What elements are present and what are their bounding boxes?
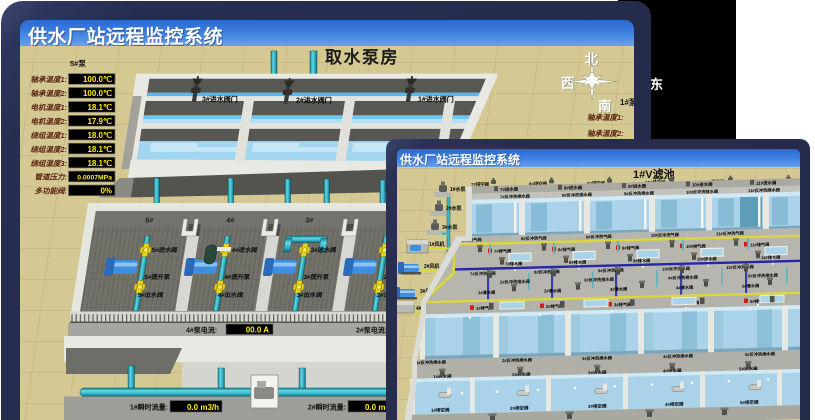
svg-text:5#提升泵: 5#提升泵 bbox=[144, 273, 171, 281]
svg-text:18.0℃: 18.0℃ bbox=[87, 131, 112, 140]
svg-text:100.0℃: 100.0℃ bbox=[83, 89, 112, 98]
svg-text:5#进水阀: 5#进水阀 bbox=[151, 246, 178, 254]
svg-text:2#风机: 2#风机 bbox=[424, 263, 440, 270]
svg-text:1#V滤池: 1#V滤池 bbox=[633, 167, 675, 181]
svg-text:4#: 4# bbox=[226, 218, 235, 225]
svg-text:电机温度2:: 电机温度2: bbox=[30, 117, 67, 126]
svg-text:多功能阀:: 多功能阀: bbox=[35, 187, 68, 196]
svg-text:3#提升泵: 3#提升泵 bbox=[303, 273, 330, 281]
svg-text:绕组温度1:: 绕组温度1: bbox=[30, 131, 67, 140]
svg-text:轴承温度1:: 轴承温度1: bbox=[30, 75, 67, 84]
svg-text:100.0℃: 100.0℃ bbox=[83, 75, 112, 84]
svg-text:1#水泵: 1#水泵 bbox=[450, 186, 467, 193]
svg-text:1#进水阀门: 1#进水阀门 bbox=[418, 95, 454, 104]
svg-text:1#瞬时流量:: 1#瞬时流量: bbox=[130, 403, 168, 412]
svg-text:2#瞬时流量:: 2#瞬时流量: bbox=[308, 403, 346, 412]
svg-text:轴承温度2:: 轴承温度2: bbox=[587, 129, 624, 138]
svg-text:5#: 5# bbox=[145, 218, 154, 225]
svg-text:5#出水阀: 5#出水阀 bbox=[137, 291, 164, 299]
svg-text:4#泵电流:: 4#泵电流: bbox=[186, 326, 217, 335]
svg-text:0.0 m3/h: 0.0 m3/h bbox=[187, 403, 219, 412]
svg-text:5#泵: 5#泵 bbox=[70, 59, 86, 68]
svg-text:3#出水阀: 3#出水阀 bbox=[296, 291, 323, 299]
svg-text:18.1℃: 18.1℃ bbox=[87, 145, 112, 154]
svg-text:1#风机: 1#风机 bbox=[429, 241, 445, 248]
svg-text:3#: 3# bbox=[305, 218, 314, 225]
svg-text:2#进水阀门: 2#进水阀门 bbox=[296, 96, 332, 105]
svg-text:00.0 A: 00.0 A bbox=[246, 326, 269, 335]
svg-text:绕组温度3:: 绕组温度3: bbox=[30, 159, 67, 168]
svg-text:绕组温度2:: 绕组温度2: bbox=[30, 145, 67, 154]
svg-text:4#出水阀: 4#出水阀 bbox=[217, 291, 244, 299]
svg-text:1#泵: 1#泵 bbox=[620, 98, 634, 107]
svg-text:17.9℃: 17.9℃ bbox=[87, 117, 112, 126]
svg-text:电机温度1:: 电机温度1: bbox=[30, 103, 67, 112]
svg-text:18.1℃: 18.1℃ bbox=[87, 103, 112, 112]
svg-text:取水泵房: 取水泵房 bbox=[325, 47, 399, 67]
svg-text:2#水泵: 2#水泵 bbox=[446, 205, 463, 212]
svg-text:4#进水阀: 4#进水阀 bbox=[231, 246, 258, 254]
svg-text:0.0007MPa: 0.0007MPa bbox=[77, 175, 112, 182]
svg-text:西: 西 bbox=[561, 76, 575, 91]
svg-text:0%: 0% bbox=[100, 187, 112, 196]
svg-text:3#进水阀: 3#进水阀 bbox=[310, 246, 337, 254]
svg-text:3#水泵: 3#水泵 bbox=[442, 224, 459, 231]
svg-text:管道压力:: 管道压力: bbox=[35, 173, 68, 182]
svg-text:南: 南 bbox=[598, 98, 612, 114]
svg-text:3#进水阀门: 3#进水阀门 bbox=[202, 95, 238, 104]
svg-text:18.1℃: 18.1℃ bbox=[87, 159, 112, 168]
svg-text:轴承温度2:: 轴承温度2: bbox=[30, 89, 67, 98]
svg-text:2#泵电流:: 2#泵电流: bbox=[356, 326, 387, 335]
svg-text:4#提升泵: 4#提升泵 bbox=[224, 273, 251, 281]
svg-text:轴承温度1:: 轴承温度1: bbox=[587, 113, 624, 122]
